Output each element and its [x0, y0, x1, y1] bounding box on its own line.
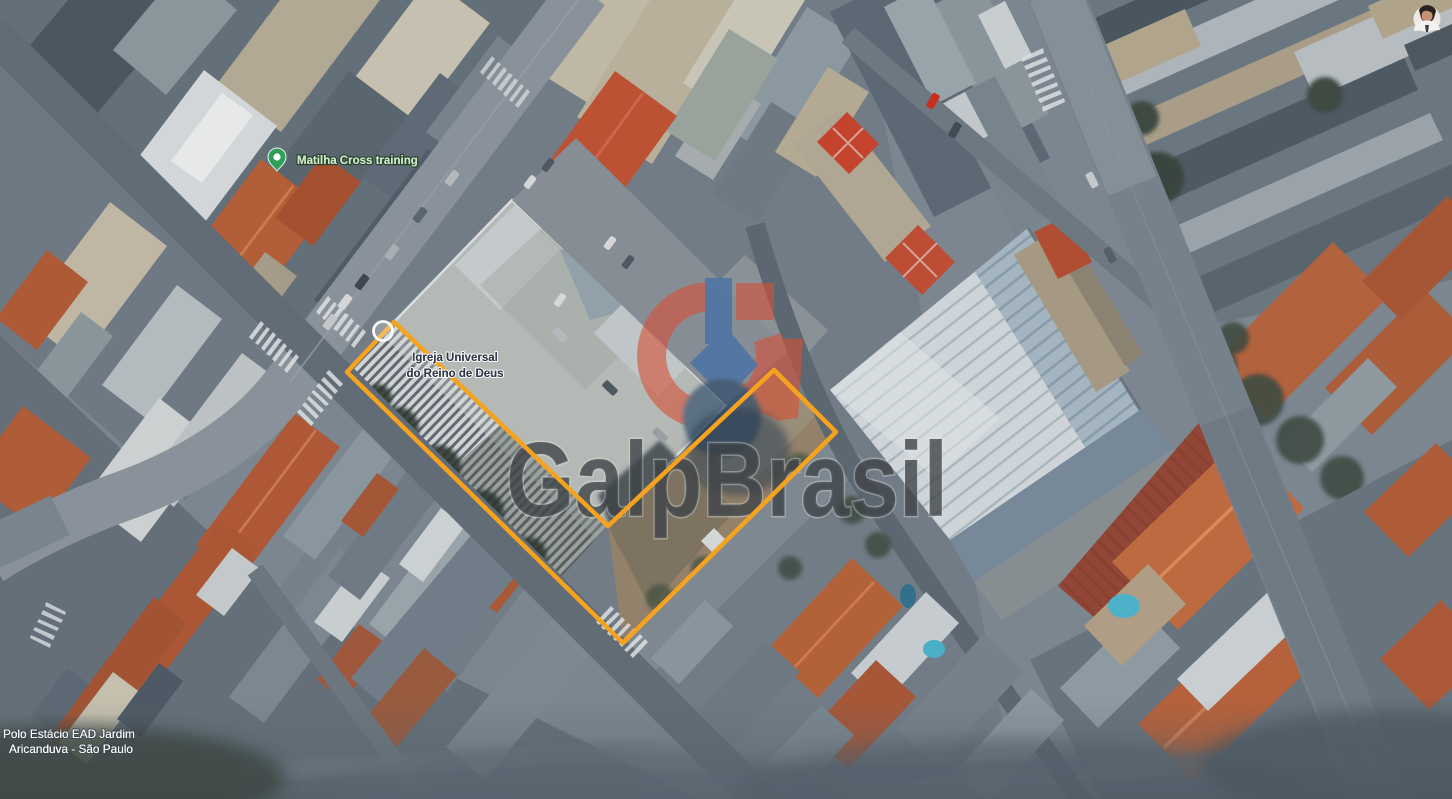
- svg-text:Aricanduva - São Paulo: Aricanduva - São Paulo: [9, 742, 133, 756]
- svg-text:GalpBrasil: GalpBrasil: [506, 421, 948, 539]
- svg-text:Polo Estácio EAD Jardim: Polo Estácio EAD Jardim: [3, 727, 135, 741]
- svg-text:do Reino de Deus: do Reino de Deus: [406, 368, 503, 380]
- svg-text:Igreja Universal: Igreja Universal: [412, 352, 498, 364]
- svg-text:Matilha Cross training: Matilha Cross training: [297, 155, 418, 167]
